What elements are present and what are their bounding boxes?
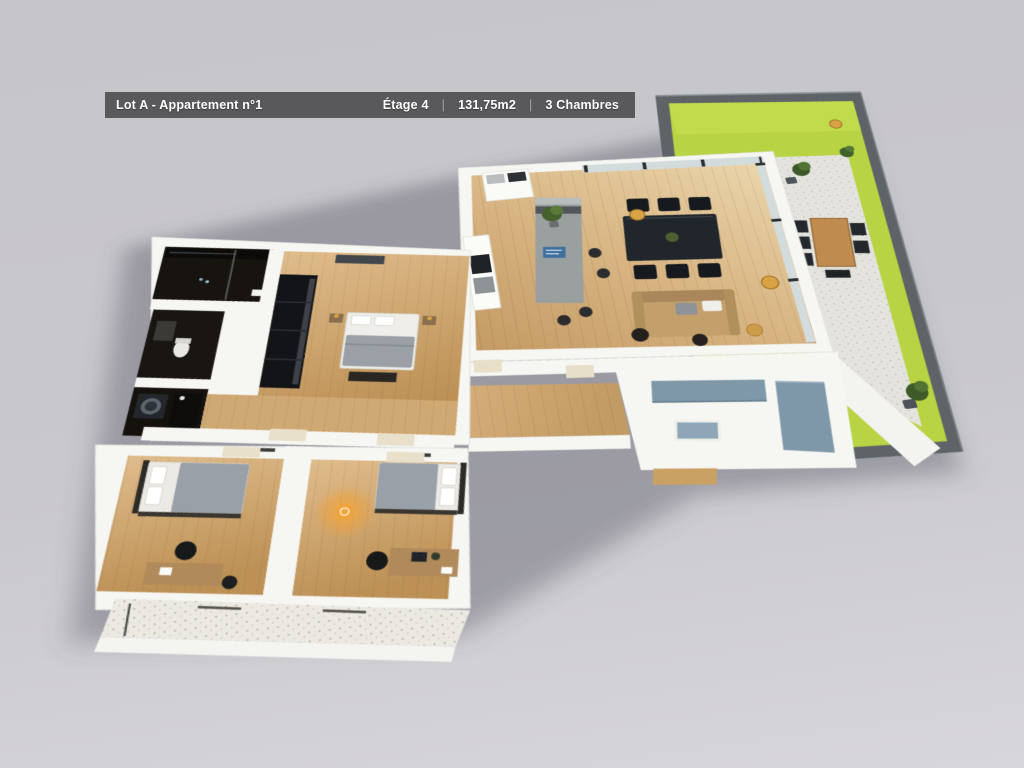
door-threshold-2 (376, 433, 414, 446)
floorplan-3d (44, 73, 1024, 717)
terrace-table (810, 218, 855, 266)
separator: | (442, 98, 445, 112)
bed-b (374, 461, 466, 515)
floor-label: Étage 4 (383, 98, 429, 112)
header-meta: Étage 4 | 131,75m2 | 3 Chambres (383, 98, 619, 112)
sofa (631, 289, 740, 338)
door-threshold-1 (268, 429, 307, 442)
render-viewport: Lot A - Appartement n°1 Étage 4 | 131,75… (0, 0, 1024, 768)
kitchen-counter (482, 169, 534, 202)
door-threshold-b (386, 452, 425, 463)
header-bar: Lot A - Appartement n°1 Étage 4 | 131,75… (105, 92, 635, 118)
lot-title: Lot A - Appartement n°1 (116, 98, 262, 112)
rooms-label: 3 Chambres (545, 98, 619, 112)
master-bathroom (152, 247, 273, 302)
separator: | (529, 98, 532, 112)
corridor-skylight (671, 416, 723, 445)
bed-a (131, 460, 250, 518)
area-label: 131,75m2 (458, 98, 516, 112)
master-window-slab (335, 255, 385, 265)
door-threshold-a (222, 446, 261, 457)
